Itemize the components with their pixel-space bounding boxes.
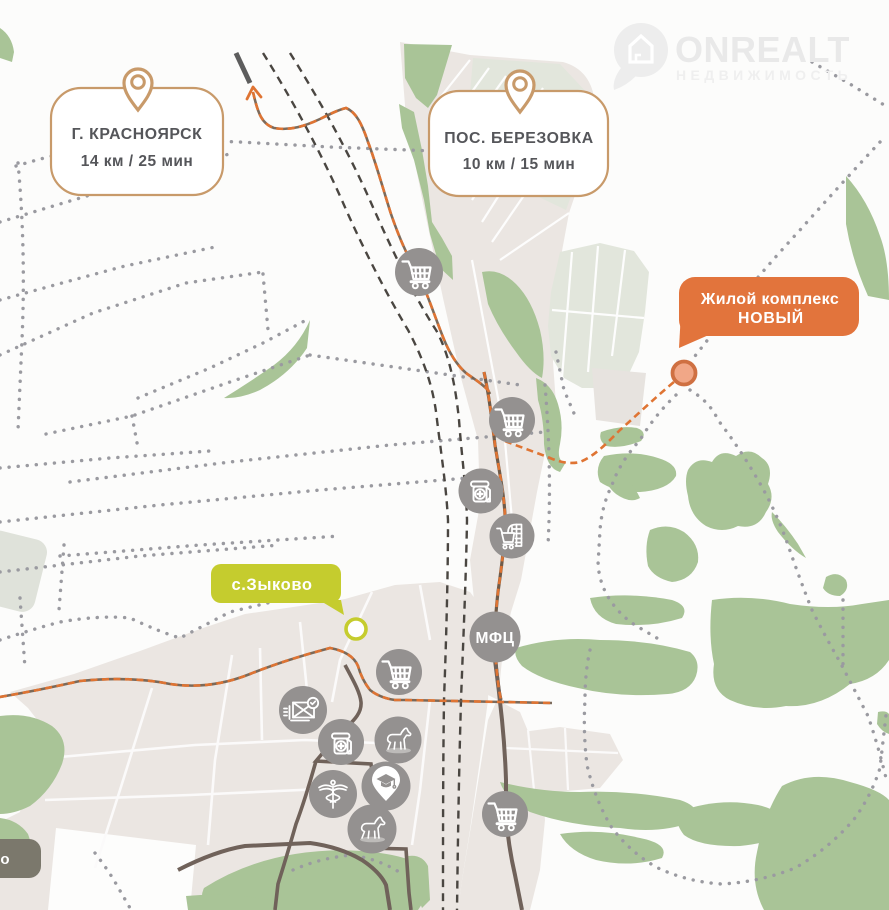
svg-text:14 км / 25 мин: 14 км / 25 мин — [81, 153, 194, 170]
svg-text:НЕДВИЖИМОСТЬ: НЕДВИЖИМОСТЬ — [676, 67, 852, 83]
svg-text:о: о — [0, 851, 9, 868]
svg-text:ONREALT: ONREALT — [675, 29, 850, 70]
svg-text:МФЦ: МФЦ — [476, 630, 515, 647]
svg-text:с.Зыково: с.Зыково — [231, 576, 312, 594]
svg-text:10 км / 15 мин: 10 км / 15 мин — [463, 156, 576, 173]
svg-text:НОВЫЙ: НОВЫЙ — [738, 308, 804, 327]
svg-text:Г. КРАСНОЯРСК: Г. КРАСНОЯРСК — [72, 126, 203, 143]
svg-text:Жилой комплекс: Жилой комплекс — [700, 291, 839, 308]
svg-text:ПОС. БЕРЕЗОВКА: ПОС. БЕРЕЗОВКА — [444, 130, 594, 147]
